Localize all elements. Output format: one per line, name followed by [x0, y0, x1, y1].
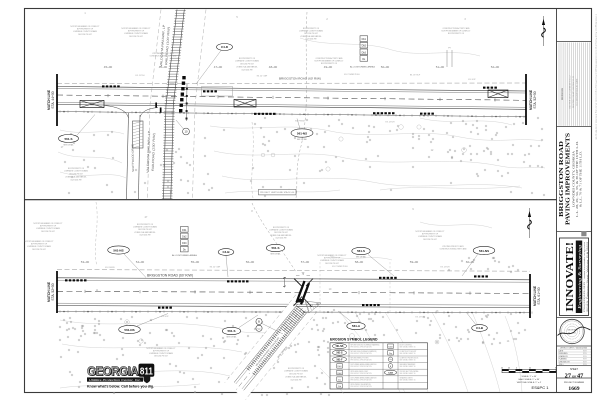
- svg-text:EX. 18" RCP: EX. 18" RCP: [410, 75, 421, 77]
- svg-text:STA. 52+50: STA. 52+50: [51, 283, 55, 300]
- svg-text:LOWNDES COUNTY BOARD: LOWNDES COUNTY BOARD: [133, 226, 158, 229]
- svg-text:Db2: Db2: [362, 45, 367, 48]
- svg-text:STA. 61+00: STA. 61+00: [537, 287, 541, 304]
- svg-text:PH#(229)249-0115 - www.innov: PH#(229)249-0115 - www.innovate-eng.com: [583, 241, 586, 311]
- svg-text:DB 1234 PG 567: DB 1234 PG 567: [325, 263, 339, 265]
- svg-text:BRIGGSTON ROAD: BRIGGSTON ROAD: [559, 140, 565, 217]
- svg-text:C4-B: C4-B: [476, 326, 484, 330]
- svg-text:561-NS: 561-NS: [336, 346, 344, 348]
- svg-text:DB 1234 PG 567: DB 1234 PG 567: [41, 231, 55, 233]
- svg-text:LOWNDES COUNTY BOARD: LOWNDES COUNTY BOARD: [418, 235, 443, 238]
- svg-text:561-NS: 561-NS: [479, 249, 489, 253]
- svg-text:DB 1234 PG 567: DB 1234 PG 567: [154, 356, 168, 358]
- svg-text:SEE DETAIL: SEE DETAIL: [270, 252, 280, 255]
- svg-text:0123 456 789: 0123 456 789: [71, 179, 82, 181]
- svg-text:LOWNDES COUNTY BOARD: LOWNDES COUNTY BOARD: [235, 60, 260, 63]
- svg-text:DB 1234 PG 567: DB 1234 PG 567: [423, 239, 437, 241]
- svg-text:VERTICAL SCALE: 1" = 4': VERTICAL SCALE: 1" = 4': [517, 381, 542, 384]
- svg-text:51+00: 51+00: [436, 65, 445, 69]
- svg-text:N/F PROPERTY OF: N/F PROPERTY OF: [239, 58, 256, 60]
- svg-text:LOWNDES COUNTY BOARD: LOWNDES COUNTY BOARD: [27, 245, 52, 248]
- svg-text:B: B: [258, 320, 260, 324]
- svg-text:DB 1234 PG 567: DB 1234 PG 567: [78, 34, 92, 36]
- svg-text:NOTIFY ENGINEER OF CONFLICT: NOTIFY ENGINEER OF CONFLICT: [34, 223, 64, 225]
- svg-text:Engineering & Surveying: Engineering & Surveying: [577, 245, 582, 311]
- svg-text:57+00: 57+00: [301, 260, 310, 264]
- svg-text:NOTIFY ENGINEER OF CONFLICT: NOTIFY ENGINEER OF CONFLICT: [416, 231, 446, 233]
- svg-text:DB 1234 PG 567: DB 1234 PG 567: [129, 36, 143, 38]
- svg-text:LOWNDES COUNTY BOARD: LOWNDES COUNTY BOARD: [124, 32, 149, 35]
- svg-text:ES&PC 1: ES&PC 1: [532, 385, 550, 390]
- svg-text:DB 1234 PG 567: DB 1234 PG 567: [304, 33, 318, 35]
- svg-text:WITH MULCHING ONLY: WITH MULCHING ONLY: [351, 371, 370, 373]
- svg-text:0123 456 789: 0123 456 789: [242, 69, 253, 71]
- svg-text:UTILITIES PRIOR TO ANY: UTILITIES PRIOR TO ANY: [442, 245, 464, 248]
- svg-text:561-NS: 561-NS: [124, 328, 134, 332]
- svg-text:N/F PROPERTY OF: N/F PROPERTY OF: [40, 226, 57, 228]
- svg-text:SEE DETAIL: SEE DETAIL: [63, 144, 73, 147]
- svg-text:LOWNDES COUNTY BOARD: LOWNDES COUNTY BOARD: [149, 352, 174, 355]
- svg-text:ZONED R-A TAX PARCEL: ZONED R-A TAX PARCEL: [300, 35, 321, 38]
- svg-text:Z:\2021\Briggston Road Paving: Z:\2021\Briggston Road Paving Improvemen…: [595, 14, 598, 140]
- svg-text:NOTIFY ENGINEER OF CONFLICT: NOTIFY ENGINEER OF CONFLICT: [315, 61, 345, 63]
- svg-text:LOWNDES COUNTY BOARD: LOWNDES COUNTY BOARD: [36, 227, 61, 230]
- svg-text:C4-B: C4-B: [222, 250, 230, 254]
- svg-text:561-A: 561-A: [352, 324, 361, 328]
- svg-text:ALL DISTURBED AREAS: ALL DISTURBED AREAS: [172, 254, 198, 257]
- svg-text:PROJECT LIMITS END STA 52+50: PROJECT LIMITS END STA 52+50: [260, 191, 294, 194]
- svg-text:0123 456 789: 0123 456 789: [276, 238, 287, 240]
- svg-text:0123 456 789: 0123 456 789: [306, 39, 317, 41]
- svg-text:CONSTRUCTION ACTIVITY AND: CONSTRUCTION ACTIVITY AND: [442, 27, 470, 30]
- svg-text:CONSTRUCTION ACTIVITY AND: CONSTRUCTION ACTIVITY AND: [149, 55, 177, 58]
- svg-text:49+00: 49+00: [324, 65, 333, 69]
- svg-text:N/F PROPERTY OF: N/F PROPERTY OF: [68, 168, 85, 170]
- svg-text:REV PER GDOT COMMENTS 04-12: REV PER GDOT COMMENTS 04-12: [570, 75, 572, 109]
- svg-text:N/F PROPERTY OF: N/F PROPERTY OF: [31, 244, 48, 246]
- svg-text:EX. POWER POLE: EX. POWER POLE: [344, 74, 360, 76]
- svg-text:DB 1234 PG 567: DB 1234 PG 567: [274, 232, 288, 234]
- svg-text:LOWNDES COUNTY BOARD: LOWNDES COUNTY BOARD: [64, 170, 89, 173]
- svg-text:BRIGGSTON ROAD (60' R/W): BRIGGSTON ROAD (60' R/W): [279, 77, 321, 81]
- svg-text:Db3: Db3: [182, 242, 187, 245]
- svg-text:EX. 24" CMP: EX. 24" CMP: [257, 76, 268, 78]
- svg-text:EX. FENCE: EX. FENCE: [295, 121, 305, 123]
- svg-text:DB 1234 PG 567: DB 1234 PG 567: [138, 229, 152, 231]
- svg-text:561-S: 561-S: [357, 249, 365, 253]
- svg-text:SEE DETAIL: SEE DETAIL: [226, 335, 236, 338]
- svg-text:75': 75': [301, 273, 305, 276]
- svg-text:Know what's below. Call before: Know what's below. Call before you dig.: [87, 385, 154, 389]
- svg-text:27 OF 47: 27 OF 47: [565, 372, 584, 379]
- svg-text:EROSION SYMBOL LEGEND: EROSION SYMBOL LEGEND: [330, 338, 378, 342]
- svg-text:ZONED R-A TAX PARCEL: ZONED R-A TAX PARCEL: [270, 234, 291, 237]
- svg-text:N/F PROPERTY OF: N/F PROPERTY OF: [303, 28, 320, 30]
- svg-text:EX. DITCH: EX. DITCH: [386, 122, 396, 124]
- svg-text:N/F PROPERTY OF: N/F PROPERTY OF: [77, 29, 94, 31]
- svg-text:N/F PROPERTY OF: N/F PROPERTY OF: [448, 33, 465, 35]
- svg-text:45+00: 45+00: [104, 65, 113, 69]
- svg-text:N/F PROPERTY OF: N/F PROPERTY OF: [324, 258, 341, 260]
- svg-text:DB 1234 PG 567: DB 1234 PG 567: [69, 174, 83, 176]
- svg-text:ZONED R-A TAX PARCEL: ZONED R-A TAX PARCEL: [236, 66, 257, 69]
- svg-text:EX. DITCH: EX. DITCH: [416, 317, 426, 319]
- svg-text:2614 N. Patterson Street, Vald: 2614 N. Patterson Street, Valdosta, G.A …: [586, 240, 589, 311]
- svg-text:CONSTRUCTION ACTIVITY AND: CONSTRUCTION ACTIVITY AND: [439, 248, 467, 251]
- svg-text:SCALE: 1" = 40': SCALE: 1" = 40': [522, 375, 538, 378]
- svg-text:NPDES WEEKLY FLYER: NPDES WEEKLY FLYER: [351, 358, 370, 360]
- svg-text:52+00: 52+00: [491, 65, 500, 69]
- svg-text:SHEET: SHEET: [570, 368, 579, 371]
- svg-text:DB 1234 PG 567: DB 1234 PG 567: [289, 374, 303, 376]
- svg-text:EX. DITCH: EX. DITCH: [136, 75, 146, 77]
- svg-text:58+00: 58+00: [355, 260, 364, 264]
- svg-text:COMPOST FILTER SOCK: COMPOST FILTER SOCK: [400, 358, 420, 360]
- svg-text:N/F PROPERTY OF: N/F PROPERTY OF: [273, 227, 290, 229]
- svg-text:N/F PROPERTY OF: N/F PROPERTY OF: [288, 368, 305, 370]
- svg-text:561-S: 561-S: [336, 353, 343, 355]
- svg-text:55+00: 55+00: [191, 260, 200, 264]
- svg-text:56+00: 56+00: [246, 260, 255, 264]
- svg-text:STA. 52+50: STA. 52+50: [533, 91, 537, 108]
- svg-text:REV PER COUNTY REVIEW 03-02: REV PER COUNTY REVIEW 03-02: [573, 75, 575, 108]
- svg-text:LEVEL II CERT # 0000012345: LEVEL II CERT # 0000012345: [560, 347, 588, 349]
- svg-text:SEE DETAIL: SEE DETAIL: [356, 255, 366, 258]
- svg-text:DB 1234 PG 567: DB 1234 PG 567: [240, 64, 254, 66]
- svg-text:& L.L. 70 & 71 OF THE 11TH L.D: & L.L. 70 & 71 OF THE 11TH L.D.: [580, 150, 583, 207]
- svg-text:561-S: 561-S: [227, 329, 235, 333]
- svg-text:LOWNDES COUNTY BOARD: LOWNDES COUNTY BOARD: [299, 30, 324, 33]
- svg-text:561-F: 561-F: [336, 359, 343, 361]
- svg-text:LOWNDES COUNTY BOARD: LOWNDES COUNTY BOARD: [320, 259, 345, 262]
- svg-text:EX. EOP: EX. EOP: [161, 316, 169, 318]
- svg-text:NOTIFY ENGINEER OF CONFLICT: NOTIFY ENGINEER OF CONFLICT: [25, 241, 55, 243]
- svg-text:EX. DITCH: EX. DITCH: [441, 267, 451, 269]
- svg-text:561-NS: 561-NS: [113, 248, 123, 252]
- svg-text:ALL DISTURBED AREAS: ALL DISTURBED AREAS: [350, 65, 376, 68]
- svg-text:59+00: 59+00: [410, 260, 419, 264]
- svg-text:DUST CONTROL: DUST CONTROL: [400, 344, 413, 346]
- svg-text:ZONED R-A TAX PARCEL: ZONED R-A TAX PARCEL: [285, 376, 306, 379]
- svg-text:N/F PROPERTY OF: N/F PROPERTY OF: [137, 224, 154, 226]
- svg-text:561-S: 561-S: [64, 137, 72, 141]
- svg-text:NOTIFY ENGINEER OF CONFLICT: NOTIFY ENGINEER OF CONFLICT: [442, 31, 472, 33]
- svg-text:Db1: Db1: [362, 38, 367, 41]
- svg-text:NO. DESCRIPTION BY DATE: NO. DESCRIPTION BY DATE: [576, 78, 579, 105]
- svg-text:STA. 44+00: STA. 44+00: [51, 91, 55, 108]
- svg-text:N/F PROPERTY OF: N/F PROPERTY OF: [321, 63, 338, 65]
- svg-text:NOTIFY ENGINEER OF CONFLICT: NOTIFY ENGINEER OF CONFLICT: [122, 28, 152, 30]
- svg-text:INNOVATE!: INNOVATE!: [565, 242, 576, 312]
- svg-text:1669: 1669: [568, 386, 579, 392]
- svg-text:EX. 24" CMP: EX. 24" CMP: [210, 267, 221, 269]
- svg-text:50+00: 50+00: [381, 65, 390, 69]
- svg-text:Db2: Db2: [182, 235, 187, 238]
- svg-text:54+00: 54+00: [136, 260, 145, 264]
- svg-text:EX. POWER POLE: EX. POWER POLE: [332, 266, 348, 268]
- svg-text:HALF SCALE: 1" = 80': HALF SCALE: 1" = 80': [519, 378, 540, 381]
- svg-text:ZONED R-A TAX PARCEL: ZONED R-A TAX PARCEL: [65, 176, 86, 179]
- svg-text:NOTIFY ENGINEER OF CONFLICT: NOTIFY ENGINEER OF CONFLICT: [71, 26, 101, 28]
- svg-text:LOWNDES COUNTY BOARD: LOWNDES COUNTY BOARD: [284, 370, 309, 373]
- svg-text:LOWNDES COUNTY BOARD: LOWNDES COUNTY BOARD: [269, 229, 294, 232]
- svg-text:N/F PROPERTY OF: N/F PROPERTY OF: [422, 234, 439, 236]
- svg-text:CONSTRUCTION ACTIVITY AND: CONSTRUCTION ACTIVITY AND: [315, 57, 343, 60]
- svg-text:REVISIONS: REVISIONS: [562, 88, 564, 100]
- svg-text:CONSTRUCTION EXIT: CONSTRUCTION EXIT: [400, 351, 417, 353]
- svg-text:Co: Co: [389, 359, 391, 361]
- svg-text:Db1: Db1: [182, 229, 187, 232]
- svg-text:NOTIFY ENGINEER OF CONFLICT: NOTIFY ENGINEER OF CONFLICT: [318, 255, 348, 257]
- svg-text:EX. FENCE: EX. FENCE: [105, 267, 115, 269]
- svg-text:561-S: 561-S: [271, 246, 279, 250]
- svg-text:561-NS: 561-NS: [297, 131, 307, 135]
- svg-text:0123 456 789: 0123 456 789: [140, 235, 151, 237]
- svg-text:N/F PROPERTY OF: N/F PROPERTY OF: [128, 31, 145, 33]
- svg-text:53+00: 53+00: [81, 260, 90, 264]
- svg-text:48+00: 48+00: [269, 65, 278, 69]
- svg-text:0123 456 789: 0123 456 789: [291, 379, 302, 381]
- svg-text:C4-B: C4-B: [388, 371, 393, 374]
- svg-text:ZONED R-A TAX PARCEL: ZONED R-A TAX PARCEL: [134, 231, 155, 234]
- svg-text:EX. EOP: EX. EOP: [468, 79, 476, 81]
- svg-text:UTILITIES PRIOR TO ANY: UTILITIES PRIOR TO ANY: [152, 52, 174, 55]
- svg-text:BRIGGSTON ROAD (60' R/W): BRIGGSTON ROAD (60' R/W): [147, 273, 193, 277]
- svg-text:PROJECT NUMBER: PROJECT NUMBER: [564, 382, 585, 384]
- svg-text:DB 1234 PG 567: DB 1234 PG 567: [32, 249, 46, 251]
- svg-text:GEORGIA: GEORGIA: [87, 364, 139, 378]
- svg-text:Db3: Db3: [362, 51, 367, 54]
- svg-text:Utilities Protection Center, I: Utilities Protection Center, Inc.: [89, 378, 141, 382]
- svg-text:LOWNDES COUNTY BOARD: LOWNDES COUNTY BOARD: [73, 30, 98, 33]
- svg-text:C4-D: C4-D: [221, 45, 229, 49]
- svg-text:SEE DETAIL: SEE DETAIL: [297, 138, 307, 141]
- svg-text:47+00: 47+00: [214, 65, 223, 69]
